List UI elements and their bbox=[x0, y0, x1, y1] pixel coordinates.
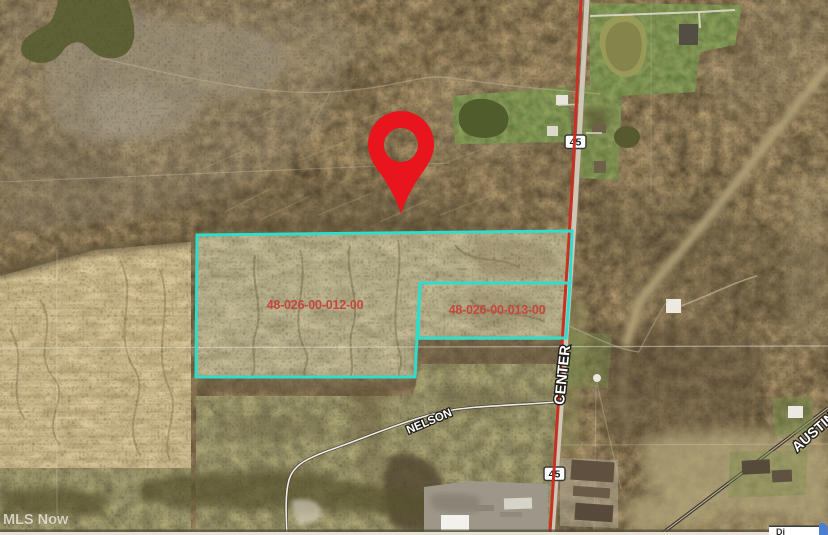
svg-text:Di: Di bbox=[776, 527, 785, 535]
svg-text:48-026-00-012-00: 48-026-00-012-00 bbox=[267, 298, 364, 312]
svg-text:48-026-00-013-00: 48-026-00-013-00 bbox=[449, 303, 546, 317]
svg-text:MLS Now: MLS Now bbox=[3, 512, 69, 528]
